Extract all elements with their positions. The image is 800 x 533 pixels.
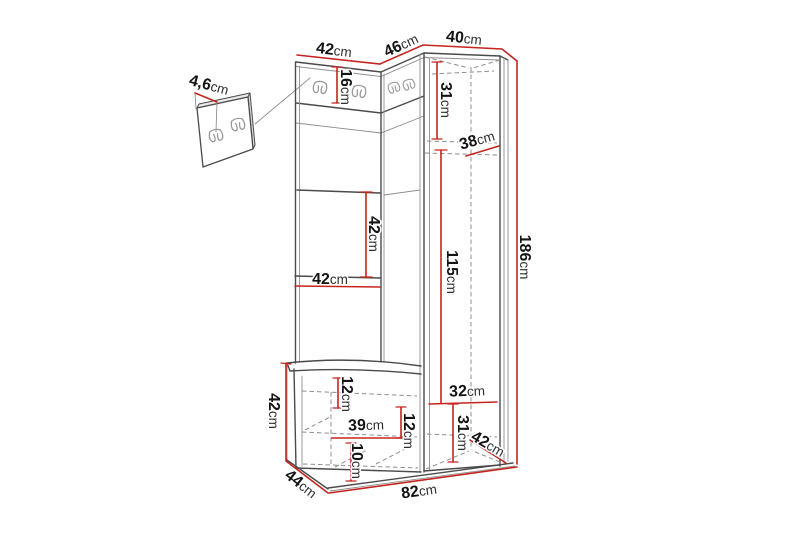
dim-label-shelf-width: 42cm	[312, 271, 348, 288]
hook-board-bottom-edge	[296, 96, 424, 113]
coat-hook-icon	[387, 81, 401, 94]
dim-unit: cm	[330, 272, 348, 287]
dim-value: 42	[315, 39, 335, 58]
hook-board-trim-edge	[296, 116, 424, 133]
bench-seat-top	[287, 360, 421, 366]
dim-unit: cm	[350, 461, 365, 479]
dim-label-cabinet-bottom-height: 31cm	[455, 415, 472, 451]
dim-value: 32	[449, 383, 467, 401]
dim-value: 10	[349, 443, 366, 461]
dim-label-bench-bottom-section: 10cm	[349, 443, 366, 479]
dim-value: 31	[455, 415, 472, 433]
dim-unit: cm	[418, 481, 438, 498]
diagram-canvas: 4,6cm 42cm 46cm 40cm 16cm 31cm 38cm 42cm…	[0, 0, 800, 533]
dim-unit: cm	[463, 31, 482, 48]
dim-unit: cm	[267, 411, 282, 429]
dim-unit: cm	[467, 383, 486, 399]
dim-unit: cm	[333, 43, 353, 60]
dim-unit: cm	[339, 87, 354, 105]
dim-line-panel-thickness	[195, 93, 217, 102]
dim-value: 42	[266, 393, 283, 411]
furniture-dimension-diagram: 4,6cm 42cm 46cm 40cm 16cm 31cm 38cm 42cm…	[0, 0, 800, 533]
dim-unit: cm	[367, 234, 382, 252]
dim-value: 39	[348, 417, 366, 435]
dim-unit: cm	[209, 78, 230, 97]
dim-value: 42	[366, 216, 383, 234]
dim-value: 16	[338, 69, 355, 87]
top-plank-inner-edge	[296, 58, 500, 77]
dim-label-panel-thickness: 4,6cm	[187, 72, 230, 99]
dim-value: 12	[339, 376, 356, 394]
dim-value: 12	[401, 413, 418, 431]
dim-label-hook-panel-height: 16cm	[338, 69, 355, 105]
hook-panel-front-face	[197, 97, 253, 167]
dim-label-bench-inner-width: 39cm	[348, 416, 384, 434]
dim-value: 40	[445, 28, 465, 47]
unit-coat-hooks	[313, 78, 416, 98]
dim-label-top-right-width: 40cm	[445, 28, 482, 49]
dim-label-total-height: 186cm	[517, 235, 534, 280]
dim-unit: cm	[439, 100, 454, 118]
dim-value: 186	[517, 235, 534, 262]
dim-label-cabinet-top-height: 31cm	[438, 82, 455, 118]
dim-unit: cm	[475, 128, 496, 147]
dim-label-bench-height: 42cm	[266, 393, 283, 429]
dim-line-cabinet-inner-width	[429, 402, 497, 404]
dim-unit: cm	[518, 261, 533, 279]
dim-unit: cm	[340, 394, 355, 412]
dim-value: 31	[438, 82, 455, 100]
dim-label-shelf-section-height: 42cm	[366, 216, 383, 252]
bench-seat-front	[287, 363, 421, 374]
dim-label-cabinet-middle-height: 115cm	[444, 250, 461, 294]
coat-hook-icon	[402, 78, 416, 91]
dim-unit: cm	[366, 417, 385, 433]
dim-label-top-corner-width: 46cm	[381, 30, 421, 61]
dim-label-cabinet-inner-width: 32cm	[449, 382, 485, 400]
detail-leader-line	[255, 78, 310, 124]
dim-label-total-width: 82cm	[400, 480, 438, 502]
dim-unit: cm	[402, 431, 417, 449]
dim-unit: cm	[445, 276, 460, 294]
dim-value: 42	[312, 271, 330, 288]
shelf-upper-corner	[384, 190, 420, 195]
dim-label-bench-top-section: 12cm	[339, 376, 356, 412]
bench-front-left-edge	[294, 369, 296, 468]
dim-label-cabinet-depth: 42cm	[468, 428, 508, 461]
coat-hook-icon	[313, 81, 328, 94]
dim-value: 115	[444, 250, 461, 276]
dim-label-bench-middle-section: 12cm	[401, 413, 418, 449]
